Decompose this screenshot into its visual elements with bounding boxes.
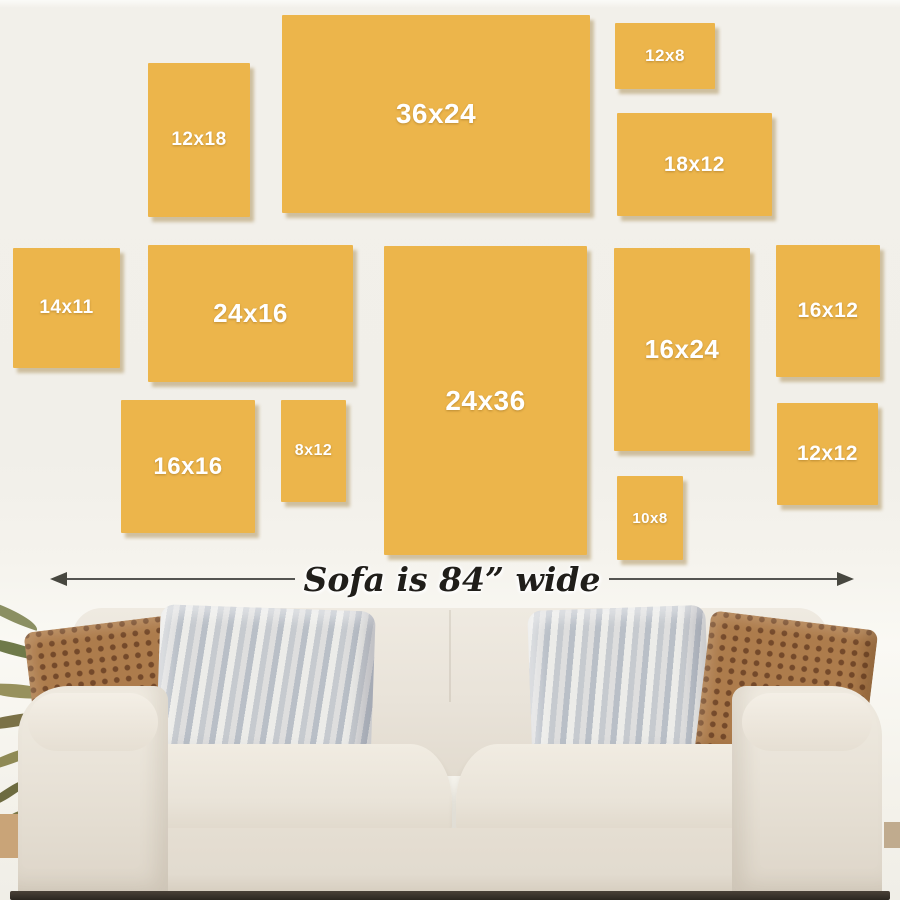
frame-size-label: 16x16 [153,453,222,481]
floor-patch [884,822,900,848]
plant-leaf [0,598,41,630]
frame-size-label: 12x8 [645,46,685,66]
arrow-line-right [609,578,837,580]
art-frame-24x16: 24x16 [148,245,353,382]
frame-size-label: 18x12 [664,153,725,177]
sofa-width-label: Sofa is 84” wide [304,560,601,599]
arrow-line-left [67,578,295,580]
frame-size-label: 12x18 [171,129,226,151]
art-frame-8x12: 8x12 [281,400,346,502]
art-frame-24x36: 24x36 [384,246,587,555]
art-frame-16x12: 16x12 [776,245,880,377]
sofa-arm-left [18,686,168,893]
frame-size-label: 10x8 [632,510,667,527]
sofa-arm-right [732,686,882,893]
art-frame-10x8: 10x8 [617,476,683,560]
frame-size-label: 36x24 [396,98,476,130]
frame-size-label: 8x12 [295,442,333,460]
art-frame-16x24: 16x24 [614,248,750,451]
right-arrowhead-icon [837,572,854,586]
sofa-back-seam [449,610,451,702]
frame-size-label: 16x12 [798,299,859,323]
art-frame-14x11: 14x11 [13,248,120,368]
frame-size-label: 24x16 [213,298,288,329]
art-frame-36x24: 36x24 [282,15,590,213]
floor-shadow-line [10,891,890,900]
frame-size-label: 16x24 [645,334,720,365]
art-frame-12x12: 12x12 [777,403,878,505]
size-guide-scene: 12x1836x2412x818x1214x1124x1624x3616x241… [0,0,900,900]
frame-size-label: 12x12 [797,442,858,466]
frame-size-label: 14x11 [39,297,93,319]
art-frame-12x8: 12x8 [615,23,715,89]
left-arrowhead-icon [50,572,67,586]
art-frame-12x18: 12x18 [148,63,250,217]
sofa-width-annotation: Sofa is 84” wide [50,556,854,602]
art-frame-16x16: 16x16 [121,400,255,533]
art-frame-18x12: 18x12 [617,113,772,216]
frame-size-label: 24x36 [445,385,525,417]
